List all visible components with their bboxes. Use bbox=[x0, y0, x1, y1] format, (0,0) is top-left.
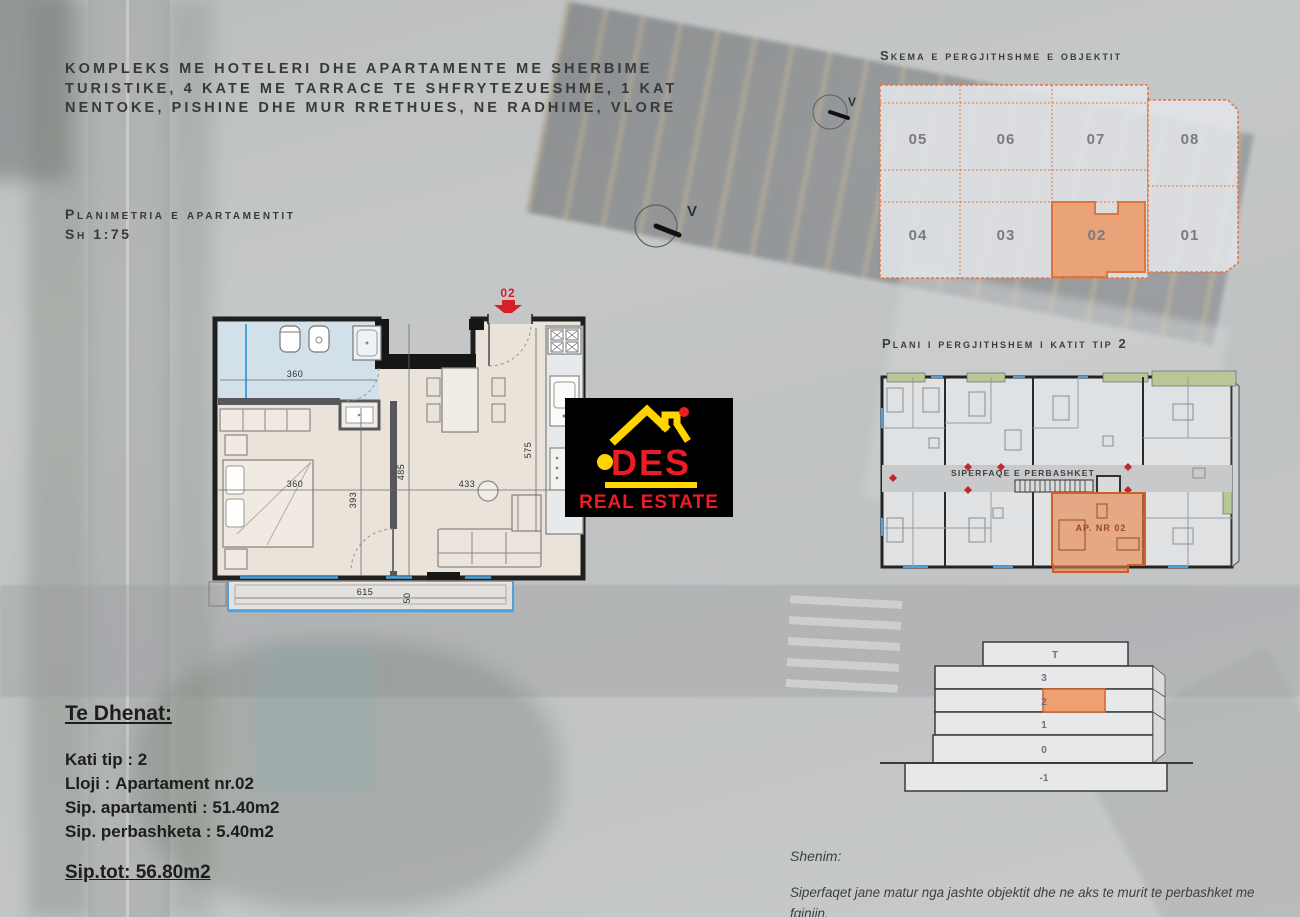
floor-label-3: 3 bbox=[1041, 673, 1047, 684]
schema-unit-08: 08 bbox=[1181, 131, 1200, 148]
details-row-apartment-area: Sip. apartamenti : 51.40m2 bbox=[65, 796, 395, 820]
schema-unit-04: 04 bbox=[909, 227, 928, 244]
toilet-fixture bbox=[280, 326, 300, 352]
schema-unit-05: 05 bbox=[909, 131, 928, 148]
house-roof-icon bbox=[615, 407, 689, 440]
floor-label-minus1: -1 bbox=[1040, 773, 1049, 784]
details-label: Kati tip : bbox=[65, 750, 133, 769]
details-total: Sip.tot: 56.80m2 bbox=[65, 862, 395, 884]
floor-label-T: T bbox=[1052, 650, 1058, 661]
floor-label-2: 2 bbox=[1041, 697, 1047, 708]
project-title-line2: TURISTIKE, 4 KATE ME TARRACE TE SHFRYTEZ… bbox=[65, 80, 765, 100]
dim-balcony-depth: 50 bbox=[402, 592, 412, 603]
bathroom-wall bbox=[218, 398, 340, 405]
wall-pier bbox=[375, 354, 476, 369]
nightstand bbox=[225, 435, 247, 455]
details-heading: Te Dhenat: bbox=[65, 702, 395, 726]
section-3d-edge bbox=[1153, 666, 1165, 763]
project-title-line3: NENTOKE, PISHINE DHE MUR RRETHUES, NE RA… bbox=[65, 99, 765, 119]
details-value: 51.40m2 bbox=[212, 798, 279, 817]
entrance-marker: 02 bbox=[494, 286, 522, 316]
north-compass-icon-small: V bbox=[806, 82, 870, 134]
brochure-page: KOMPLEKS ME HOTELERI DHE APARTAMENTE ME … bbox=[0, 0, 1300, 917]
details-value: Apartament nr.02 bbox=[115, 774, 254, 793]
cooktop bbox=[548, 328, 581, 354]
logo-tagline-text: REAL ESTATE bbox=[579, 492, 719, 513]
project-title-line1: KOMPLEKS ME HOTELERI DHE APARTAMENTE ME … bbox=[65, 60, 765, 80]
des-logo-art: DES REAL ESTATE bbox=[565, 398, 733, 517]
plan-caption-line1: Planimetria e apartamentit bbox=[65, 204, 295, 224]
chimney-dot-icon bbox=[679, 407, 689, 417]
schema-unit-03: 03 bbox=[997, 227, 1016, 244]
note-line1: Siperfaqet jane matur nga jashte objekti… bbox=[790, 882, 1280, 917]
schema-unit-07: 07 bbox=[1087, 131, 1106, 148]
plan-caption: Planimetria e apartamentit Sh 1:75 bbox=[65, 204, 295, 244]
compass-north-label: V bbox=[848, 95, 856, 109]
elevator bbox=[1097, 476, 1120, 493]
dim-balcony-width: 615 bbox=[357, 587, 374, 597]
apartment-details: Te Dhenat: Kati tip : 2 Lloji : Apartame… bbox=[65, 702, 395, 884]
building-section-diagram: T 3 2 1 0 -1 bbox=[878, 633, 1202, 803]
dim-bath-width: 360 bbox=[287, 369, 304, 379]
building-schema: 05 06 07 08 04 03 02 01 bbox=[870, 80, 1250, 285]
entrance-opening bbox=[488, 313, 532, 324]
section-floor2-highlight bbox=[1043, 689, 1105, 712]
background-trees-topleft bbox=[0, 0, 70, 180]
planter bbox=[209, 582, 226, 606]
double-bed bbox=[223, 460, 313, 547]
details-row-common-area: Sip. perbashketa : 5.40m2 bbox=[65, 820, 395, 844]
staircase bbox=[1015, 480, 1093, 492]
dim-living-depth: 485 bbox=[396, 464, 406, 481]
dim-living-width: 433 bbox=[459, 479, 476, 489]
details-value: 5.40m2 bbox=[216, 822, 274, 841]
unit-02-label: AP. NR 02 bbox=[1076, 523, 1127, 533]
dim-kitchen-depth: 575 bbox=[523, 442, 533, 459]
chaise bbox=[512, 495, 541, 531]
nightstand bbox=[225, 549, 247, 569]
schema-unit-01: 01 bbox=[1181, 227, 1200, 244]
schema-panel-title: Skema e pergjithshme e objektit bbox=[880, 48, 1122, 63]
details-label: Sip. perbashketa : bbox=[65, 822, 211, 841]
wall-pier bbox=[469, 319, 484, 330]
side-table bbox=[478, 481, 498, 501]
floor-label-0: 0 bbox=[1041, 745, 1047, 756]
logo-underline bbox=[605, 482, 697, 488]
details-row-type: Lloji : Apartament nr.02 bbox=[65, 772, 395, 796]
entrance-unit-label: 02 bbox=[500, 286, 515, 300]
north-compass-icon: V bbox=[628, 190, 712, 262]
note-heading: Shenim: bbox=[790, 848, 1280, 864]
type-plan-title: Plani i pergjithshem i katit tip 2 bbox=[882, 336, 1128, 351]
wardrobe bbox=[220, 409, 310, 431]
details-row-floor: Kati tip : 2 bbox=[65, 748, 395, 772]
dim-bedroom-depth: 393 bbox=[348, 492, 358, 509]
des-logo: DES REAL ESTATE bbox=[565, 398, 733, 517]
entrance-arrow-icon bbox=[502, 300, 515, 305]
note-block: Shenim: Siperfaqet jane matur nga jashte… bbox=[790, 848, 1280, 917]
schema-unit-06: 06 bbox=[997, 131, 1016, 148]
details-label: Lloji : bbox=[65, 774, 110, 793]
shower-tray bbox=[353, 326, 381, 360]
floor-label-1: 1 bbox=[1041, 720, 1047, 731]
plan-caption-line2: Sh 1:75 bbox=[65, 224, 295, 244]
details-label: Sip. apartamenti : bbox=[65, 798, 208, 817]
dim-bedroom-width: 360 bbox=[287, 479, 304, 489]
details-value: 2 bbox=[138, 750, 147, 769]
schema-unit-02: 02 bbox=[1088, 227, 1107, 244]
logo-brand-text: DES bbox=[611, 442, 691, 483]
floor-minus1 bbox=[905, 763, 1167, 791]
corridor-label: SIPERFAQE E PERBASHKET bbox=[951, 468, 1095, 478]
bidet-fixture bbox=[309, 326, 329, 352]
project-title: KOMPLEKS ME HOTELERI DHE APARTAMENTE ME … bbox=[65, 60, 765, 119]
compass-north-label: V bbox=[687, 203, 697, 220]
type-floor-plan: SIPERFAQE E PERBASHKET AP. NR 02 bbox=[873, 368, 1248, 580]
